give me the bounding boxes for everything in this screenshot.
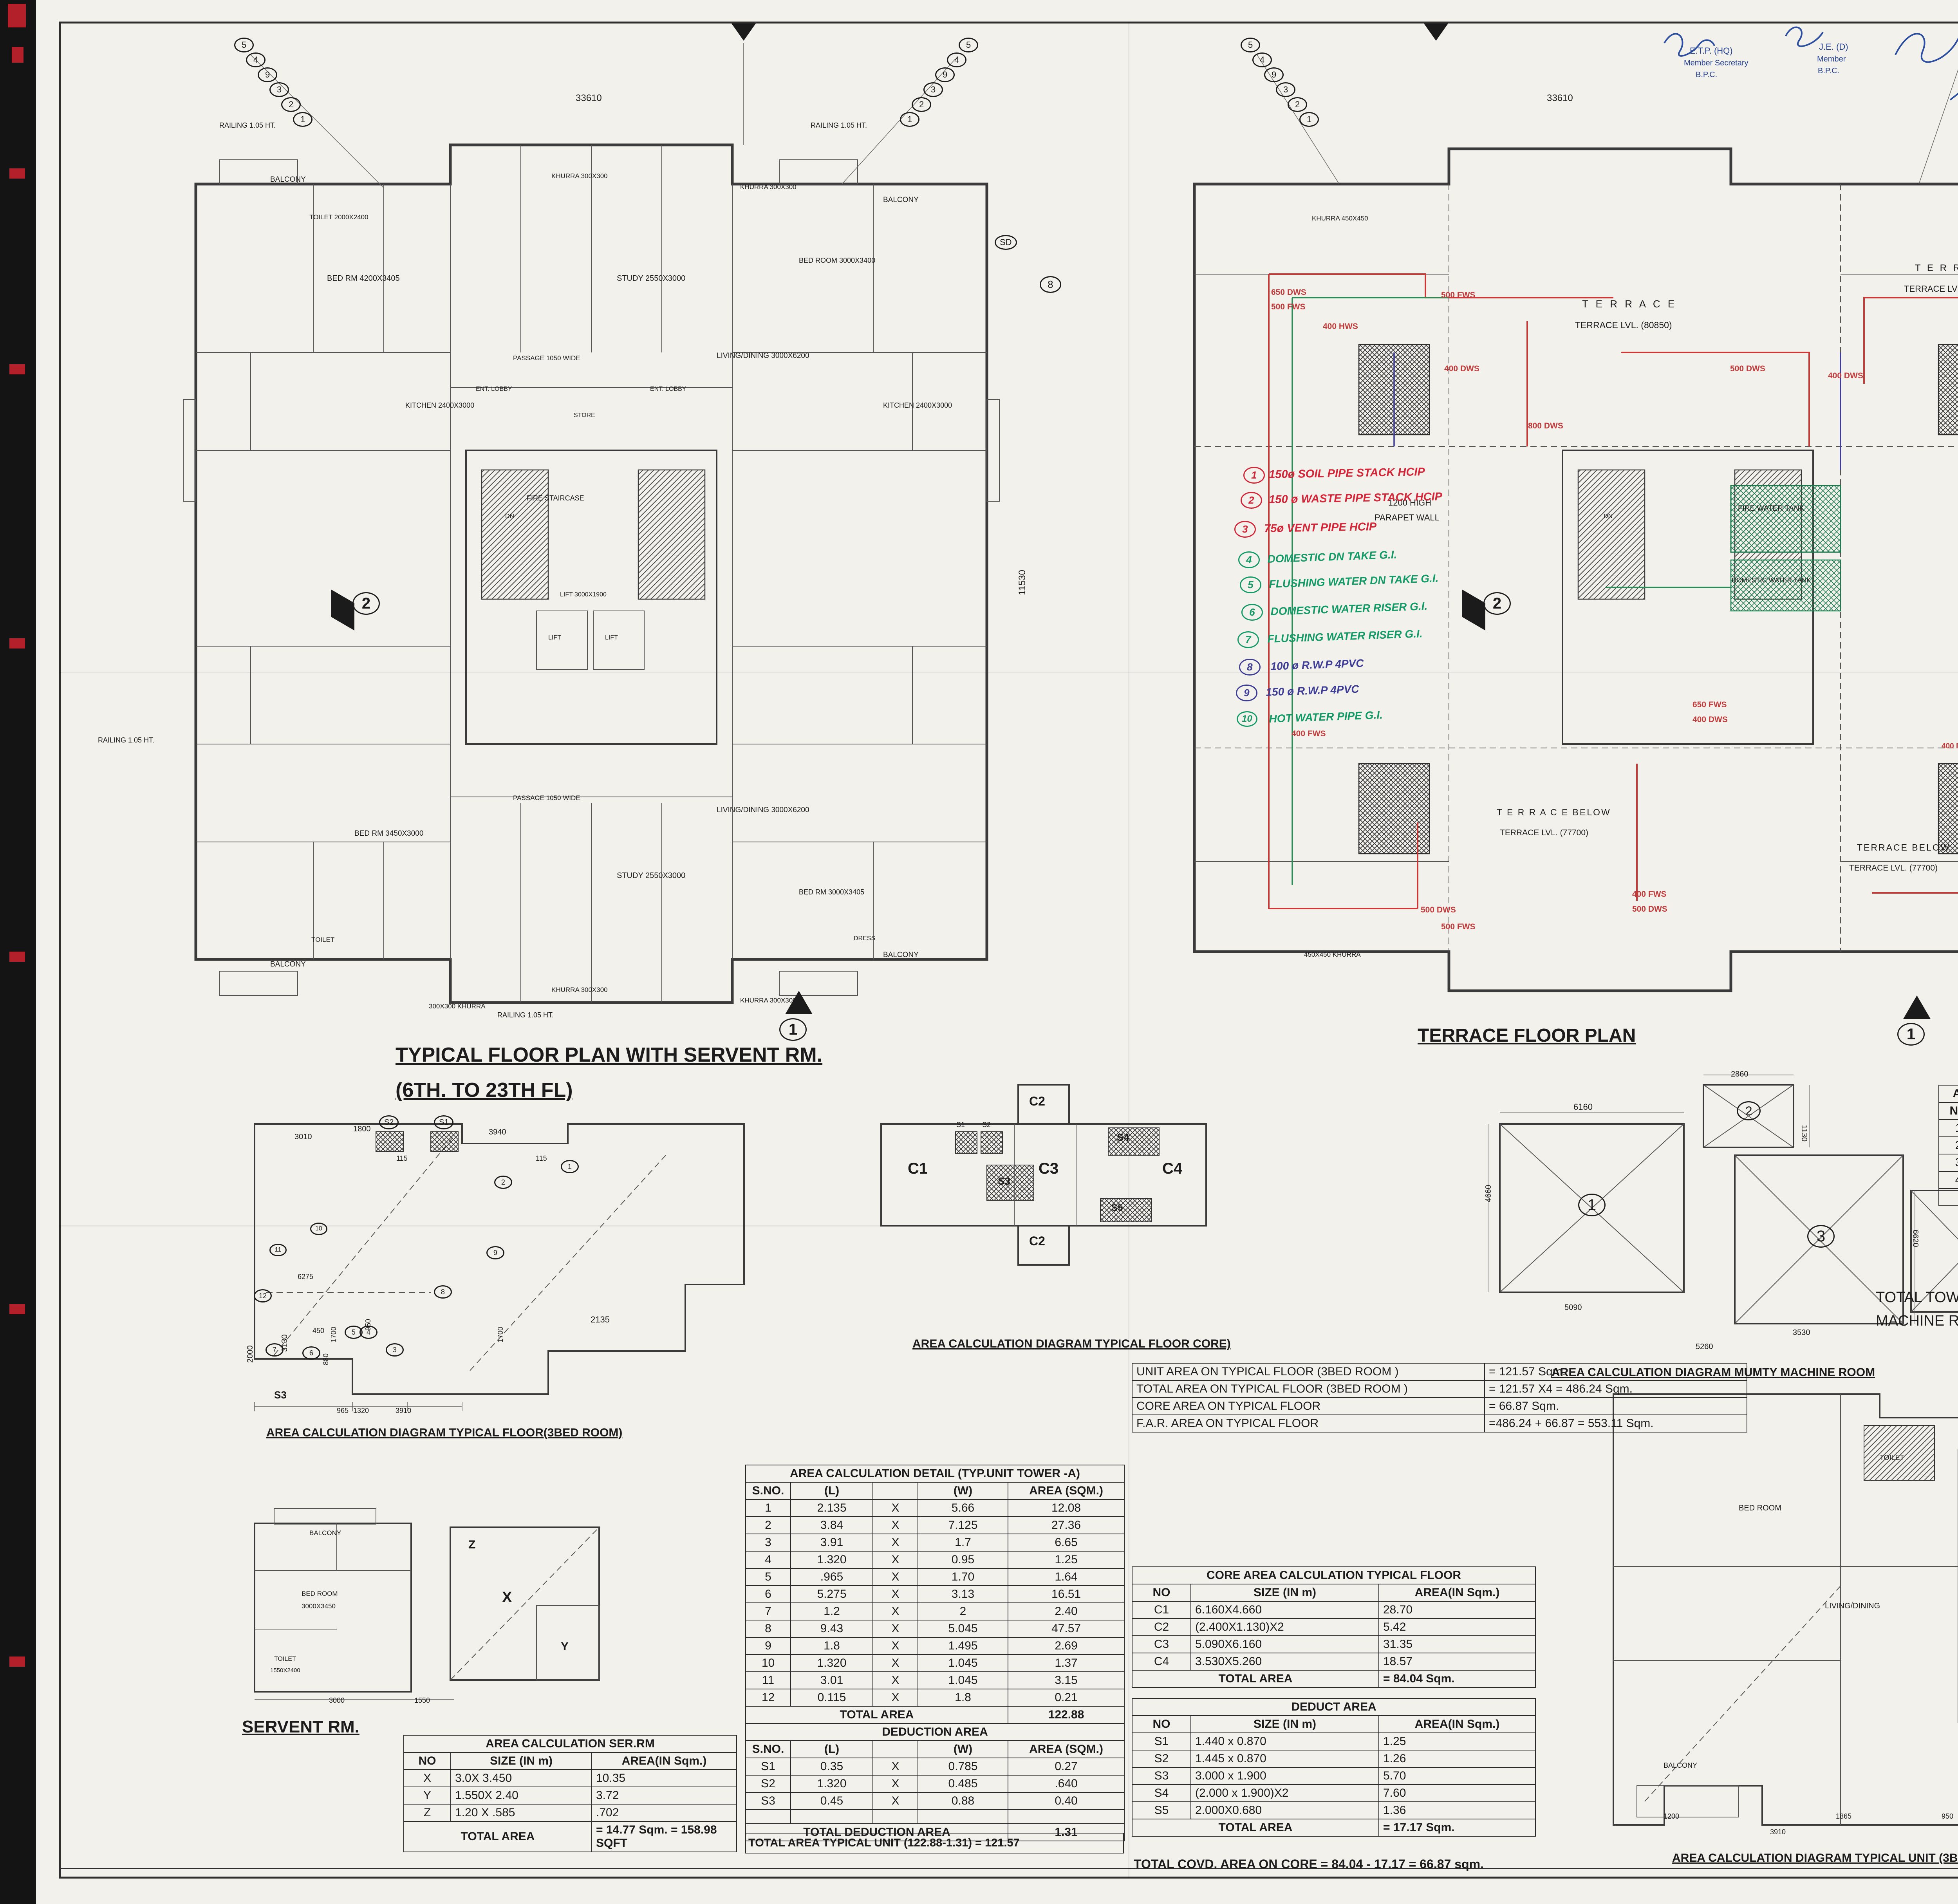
plan-label: 2	[494, 1176, 512, 1189]
plan-label: 1	[1578, 1194, 1606, 1216]
plan-label: 3910	[1770, 1828, 1786, 1836]
plan-label: 2	[1241, 492, 1262, 509]
plan-label: DRESS	[854, 935, 875, 942]
plan-label: 115	[536, 1154, 547, 1162]
plan-label: 3940	[489, 1128, 506, 1136]
plan-label: 6	[302, 1346, 320, 1360]
plan-label: 3	[1234, 521, 1256, 538]
plan-label: LIVING/DINING 3000X6200	[717, 806, 809, 814]
plan-label: 3	[1276, 82, 1295, 97]
plan-label: 2	[1288, 97, 1307, 112]
plan-label: 9	[486, 1246, 504, 1259]
plan-label: HOT WATER PIPE G.I.	[1269, 709, 1383, 725]
plan-label: 950	[1942, 1812, 1953, 1820]
plan-label: BED ROOM	[1739, 1504, 1781, 1512]
section-marker-2: 2	[1483, 592, 1511, 615]
plan-label: 9	[1236, 685, 1257, 701]
plan-label: TOILET	[274, 1656, 296, 1663]
plan-label: RAILING 1.05 HT.	[497, 1011, 554, 1019]
section-marker-1: 1	[1897, 1023, 1925, 1046]
plan-label: 1320	[353, 1407, 369, 1414]
plan-label: KHURRA 450X450	[1312, 215, 1368, 222]
plan-label: SD	[995, 235, 1017, 250]
plan-label: 1550	[414, 1696, 430, 1704]
plan-label: 10	[1237, 711, 1257, 727]
plan-label: 1865	[1836, 1812, 1851, 1820]
left-plan-title: TYPICAL FLOOR PLAN WITH SERVENT RM.	[396, 1044, 822, 1066]
plan-label: KHURRA 300X300	[740, 183, 797, 191]
plan-label: 500 DWS	[1421, 905, 1456, 915]
plan-label: STUDY 2550X3000	[617, 871, 685, 880]
plan-label: 33610	[1547, 93, 1573, 104]
plan-label: 8	[1239, 659, 1261, 676]
plan-label: S1	[434, 1115, 453, 1129]
plan-label: 400 HWS	[1323, 322, 1358, 331]
plan-label: ENT. LOBBY	[650, 386, 686, 393]
plan-label: STUDY 2550X3000	[617, 274, 685, 283]
plan-label: FLUSHING WATER RISER G.I.	[1267, 627, 1423, 645]
plan-label: 7	[1237, 631, 1259, 648]
plan-label: 400 FWS RISER	[1942, 742, 1958, 750]
plan-label: 3	[923, 82, 943, 97]
plan-label: PASSAGE 1050 WIDE	[513, 794, 580, 802]
plan-label: 2	[281, 97, 301, 112]
plan-label: 400 DWS	[1444, 364, 1479, 374]
plan-label: BED RM 3450X3000	[354, 829, 423, 838]
plan-label: 12	[254, 1289, 272, 1302]
plan-label: BALCONY	[270, 960, 306, 968]
plan-label: S1	[956, 1121, 965, 1129]
caption-servent: SERVENT RM.	[242, 1717, 359, 1736]
plan-label: 1	[1243, 467, 1265, 484]
plan-label: 6620	[1911, 1230, 1920, 1247]
plan-label: LIFT	[605, 634, 618, 641]
plan-label: 650 DWS	[1271, 288, 1306, 297]
plan-label: KITCHEN 2400X3000	[883, 401, 952, 409]
plan-label: PASSAGE 1050 WIDE	[513, 354, 580, 362]
plan-label: BALCONY	[1664, 1761, 1697, 1769]
plan-label: TERRACE LVL. (80850)	[1575, 320, 1672, 331]
plan-label: C2	[1029, 1095, 1045, 1109]
plan-label: STORE	[574, 412, 595, 419]
plan-label: 500 DWS	[1730, 364, 1765, 374]
plan-label: BALCONY	[883, 951, 919, 959]
plan-label: FIRE STAIRCASE	[527, 494, 584, 502]
plan-label: TERRACE LVL. (77700)	[1904, 284, 1958, 294]
plan-label: 1700	[330, 1327, 338, 1342]
plan-label: 500 DWS	[1632, 905, 1667, 914]
plan-label: LIVING/DINING 3000X6200	[717, 352, 809, 360]
plan-label: 6160	[1573, 1102, 1593, 1112]
plan-label: FIRE WATER TANK	[1738, 504, 1804, 513]
plan-label: 400 DWS	[1692, 715, 1728, 724]
plan-label: S3	[998, 1176, 1010, 1187]
plan-label: 2135	[591, 1315, 610, 1325]
plan-label: RAILING 1.05 HT.	[98, 736, 154, 744]
plan-label: 150ø SOIL PIPE STACK HCIP	[1269, 466, 1425, 481]
plan-label: KITCHEN 2400X3000	[405, 401, 474, 409]
plan-label: Y	[561, 1640, 569, 1653]
plan-label: 300X300 KHURRA	[429, 1003, 486, 1010]
plan-label: BED ROOM	[302, 1590, 338, 1597]
plan-label: 100 ø R.W.P 4PVC	[1270, 657, 1364, 673]
plan-label: FLUSHING WATER DN TAKE G.I.	[1269, 572, 1439, 590]
plan-label: RAILING 1.05 HT.	[811, 121, 867, 129]
plan-label: C2	[1029, 1234, 1045, 1248]
plan-label: 7	[266, 1343, 284, 1357]
plan-label: 4	[359, 1326, 378, 1339]
plan-label: Z	[468, 1538, 475, 1552]
plan-label: BALCONY	[309, 1529, 341, 1537]
plan-label: Member	[1817, 55, 1846, 63]
section-marker-1: 1	[779, 1018, 807, 1041]
plan-label: BALCONY	[270, 175, 306, 184]
plan-label: 9	[258, 67, 277, 82]
plan-labels-layer: TYPICAL FLOOR PLAN WITH SERVENT RM.(6TH.…	[0, 0, 1958, 1904]
plan-label: 4	[246, 52, 266, 67]
plan-label: Member Secretary	[1684, 59, 1748, 67]
plan-label: 2	[912, 97, 931, 112]
plan-label: 11	[269, 1244, 287, 1256]
plan-label: 650 FWS	[1692, 700, 1727, 710]
plan-label: S5	[1111, 1203, 1123, 1214]
section-marker-2: 2	[352, 592, 380, 615]
plan-label: C4	[1162, 1160, 1182, 1178]
plan-label: X	[502, 1589, 512, 1606]
plan-label: 10	[310, 1223, 327, 1235]
plan-label: 5090	[1564, 1303, 1582, 1312]
plan-label: 5	[1241, 38, 1260, 52]
plan-label: J.E. (D)	[1819, 42, 1848, 52]
plan-label: TERRACE BELOW	[1857, 843, 1950, 853]
plan-label: ENT. LOBBY	[476, 386, 512, 393]
plan-label: 9	[1264, 67, 1284, 82]
blueprint-sheet: DOOR WINDOW SCHEDULES.NO.TYPESIZECILL LE…	[0, 0, 1958, 1904]
plan-label: C1	[908, 1160, 928, 1178]
plan-label: 450	[312, 1327, 324, 1335]
plan-label: 3	[386, 1343, 404, 1357]
plan-label: 1	[293, 112, 312, 127]
plan-label: 1550X2400	[270, 1667, 300, 1674]
plan-label: T E R R A C E	[1915, 263, 1958, 274]
plan-label: BALCONY	[883, 196, 919, 204]
plan-label: 1	[561, 1160, 579, 1173]
plan-label: 33610	[576, 93, 602, 104]
plan-label: 880	[322, 1353, 330, 1365]
plan-label: BED RM 3000X3405	[799, 888, 864, 896]
plan-label: 6275	[298, 1273, 313, 1281]
plan-label: S2	[379, 1115, 399, 1129]
mumty-total-note-1: TOTAL TOWER B AREA CALCULATION MUMTY	[1876, 1289, 1958, 1306]
caption-3bed: AREA CALCULATION DIAGRAM TYPICAL FLOOR(3…	[266, 1426, 622, 1440]
plan-label: 500 FWS	[1271, 302, 1306, 312]
plan-label: 11530	[1017, 570, 1028, 595]
plan-label: DOMESTIC DN TAKE G.I.	[1267, 548, 1397, 565]
terrace-plan-title: TERRACE FLOOR PLAN	[1418, 1025, 1636, 1046]
plan-label: 5260	[1696, 1342, 1713, 1351]
plan-label: 4	[1238, 551, 1260, 568]
plan-label: T E R R A C E BELOW	[1497, 807, 1611, 818]
plan-label: DOMESTIC WATER RISER G.I.	[1270, 600, 1428, 618]
plan-label: BED ROOM 3000X3400	[799, 257, 875, 264]
plan-label: 8	[434, 1285, 452, 1299]
left-plan-subtitle: (6TH. TO 23TH FL)	[396, 1079, 573, 1102]
plan-label: 4	[947, 52, 966, 67]
plan-label: 1	[900, 112, 919, 127]
plan-label: S3	[274, 1389, 287, 1401]
plan-label: 500 FWS	[1441, 922, 1476, 932]
plan-label: TERRACE LVL. (77700)	[1849, 863, 1938, 873]
plan-label: 3000X3450	[302, 1602, 336, 1610]
plan-label: 8	[1040, 276, 1061, 293]
plan-label: 115	[396, 1154, 408, 1162]
plan-label: 1200	[1664, 1812, 1679, 1820]
plan-label: 5	[234, 38, 254, 52]
plan-label: RAILING 1.05 HT.	[219, 121, 276, 129]
plan-label: 800 DWS	[1528, 421, 1563, 431]
plan-label: LIVING/DINING	[1825, 1602, 1880, 1610]
plan-label: 400 DWS	[1828, 371, 1863, 381]
plan-label: 3010	[294, 1133, 312, 1141]
plan-label: TOILET	[1880, 1454, 1904, 1461]
plan-label: C3	[1039, 1160, 1058, 1178]
plan-label: 3	[269, 82, 289, 97]
plan-label: LIFT	[548, 634, 561, 641]
plan-label: 400 FWS	[1291, 729, 1326, 739]
plan-label: 4660	[1484, 1185, 1493, 1203]
plan-label: TOILET 2000X2400	[309, 213, 368, 221]
plan-label: S4	[1117, 1132, 1129, 1143]
plan-label: 9	[935, 67, 955, 82]
plan-label: 3	[1807, 1225, 1835, 1248]
plan-label: KHURRA 300X300	[551, 986, 608, 994]
plan-label: 2000	[246, 1346, 255, 1363]
plan-label: 1	[1299, 112, 1319, 127]
caption-unit: AREA CALCULATION DIAGRAM TYPICAL UNIT (3…	[1672, 1852, 1958, 1865]
plan-label: 450X450 KHURRA	[1304, 951, 1361, 958]
plan-label: 75ø VENT PIPE HCIP	[1264, 520, 1376, 535]
plan-label: 1700	[497, 1327, 504, 1342]
plan-label: BED RM 4200X3405	[327, 274, 400, 283]
plan-label: 4	[1252, 52, 1272, 67]
plan-label: 400 FWS	[1632, 890, 1667, 899]
plan-label: 150 ø R.W.P 4PVC	[1266, 683, 1359, 699]
plan-label: 2860	[1731, 1070, 1748, 1078]
caption-mumty: AREA CALCULATION DIAGRAM MUMTY MACHINE R…	[1552, 1366, 1875, 1379]
plan-label: 965	[337, 1407, 349, 1414]
plan-label: 500 FWS	[1441, 291, 1476, 300]
plan-label: 6	[1241, 604, 1263, 621]
plan-label: 5	[959, 38, 978, 52]
plan-label: DOMESTIC WATER TANK	[1732, 576, 1811, 584]
plan-label: S2	[982, 1121, 991, 1129]
plan-label: B.P.C.	[1818, 67, 1839, 75]
plan-label: DN	[1604, 513, 1613, 520]
plan-label: B.P.C.	[1696, 70, 1717, 79]
plan-label: 3000	[329, 1696, 345, 1704]
plan-label: 1130	[1800, 1125, 1808, 1142]
plan-label: PARAPET WALL	[1375, 513, 1440, 523]
plan-label: TOILET	[311, 936, 334, 943]
plan-label: T E R R A C E	[1582, 298, 1677, 310]
plan-label: LIFT 3000X1900	[560, 591, 607, 598]
plan-label: 2	[1737, 1101, 1761, 1120]
plan-label: DN	[505, 513, 514, 520]
plan-label: KHURRA 300X300	[740, 997, 797, 1004]
plan-label: 5	[1240, 576, 1261, 593]
mumty-total-note-2: MACHINE ROOM = 87.43 SQMT	[1876, 1313, 1958, 1330]
plan-label: 3910	[396, 1407, 411, 1414]
plan-label: 3530	[1793, 1328, 1810, 1337]
caption-core: AREA CALCULATION DIAGRAM TYPICAL FLOOR C…	[912, 1337, 1231, 1351]
plan-label: 1800	[353, 1125, 371, 1133]
plan-label: E.T.P. (HQ)	[1690, 46, 1733, 56]
plan-label: TERRACE LVL. (77700)	[1500, 828, 1588, 838]
plan-label: KHURRA 300X300	[551, 172, 608, 180]
